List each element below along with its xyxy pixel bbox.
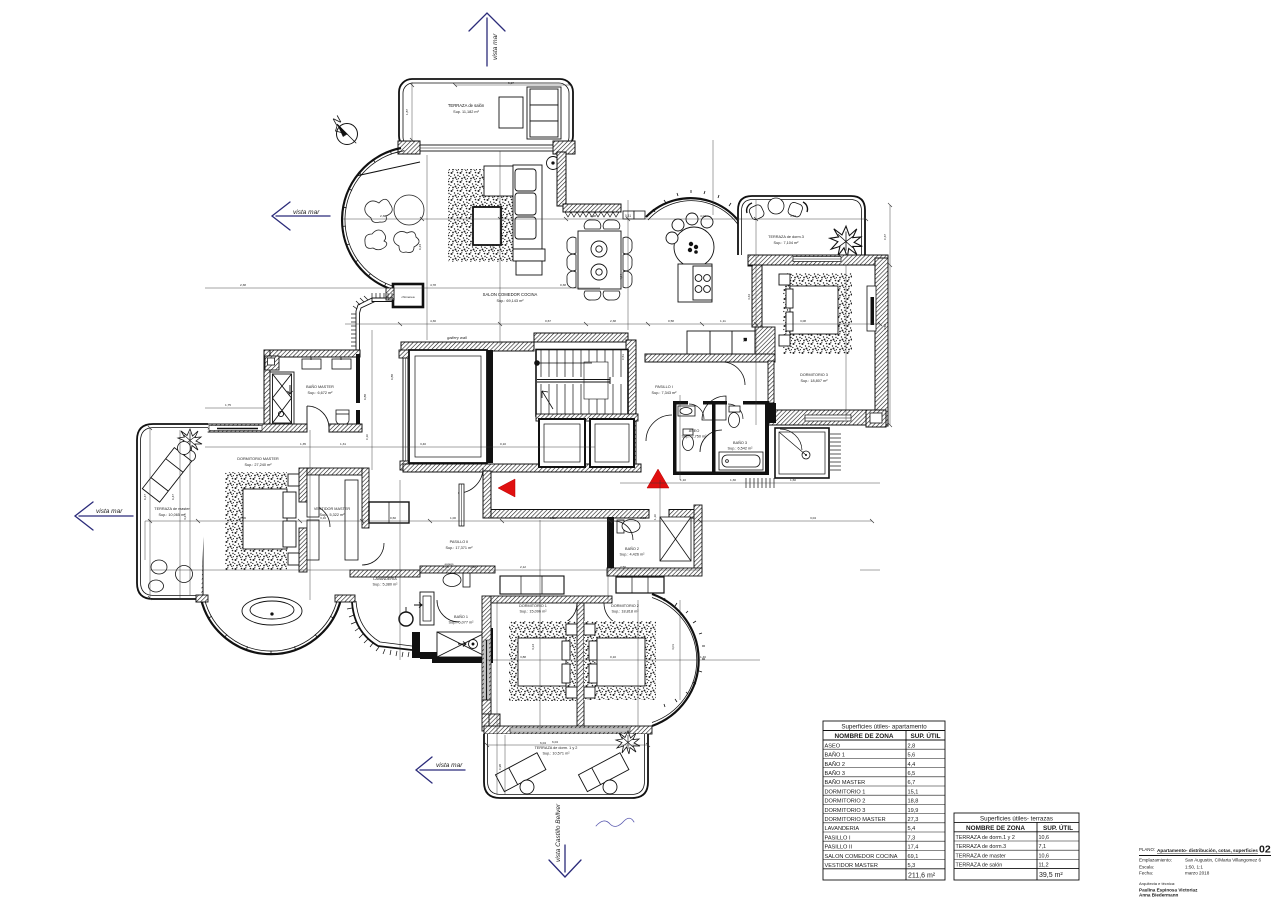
svg-text:1,01: 1,01 [443,565,449,569]
svg-text:6,7: 6,7 [908,780,916,786]
svg-text:vista mar: vista mar [96,508,123,515]
svg-text:2,38: 2,38 [240,283,246,287]
svg-text:SALON COMEDOR COCINA: SALON COMEDOR COCINA [825,854,898,860]
svg-text:BAÑO 1: BAÑO 1 [454,614,468,619]
svg-text:6,23: 6,23 [418,244,422,250]
svg-text:SUP. ÚTIL: SUP. ÚTIL [1043,823,1073,832]
svg-text:PASILLO II: PASILLO II [450,540,469,544]
svg-text:3,16: 3,16 [320,516,326,520]
svg-text:4,59: 4,59 [837,324,841,330]
svg-text:DORMITORIO 1: DORMITORIO 1 [825,789,866,795]
svg-text:3,40: 3,40 [420,442,426,446]
svg-text:19,9: 19,9 [908,808,919,814]
svg-text:3,13: 3,13 [531,644,535,650]
svg-text:Sup.: 4,426 m²: Sup.: 4,426 m² [620,553,646,557]
svg-text:3,68: 3,68 [470,565,476,569]
svg-text:PASILLO I: PASILLO I [655,385,673,389]
svg-text:27,3: 27,3 [908,817,919,823]
svg-text:4,08: 4,08 [491,244,495,250]
svg-text:San Augustin, C/Marta Villango: San Augustin, C/Marta Villangomez 6 [1185,858,1261,863]
svg-text:Sup.: 7,104 m²: Sup.: 7,104 m² [774,241,800,245]
svg-text:TERRAZA de dorm.1 y 2: TERRAZA de dorm.1 y 2 [956,835,1015,841]
svg-text:0,67: 0,67 [545,319,551,323]
svg-text:vista mar: vista mar [492,33,499,60]
svg-text:Sup.: 7,343 m²: Sup.: 7,343 m² [652,391,678,395]
svg-text:0,10: 0,10 [500,442,506,446]
svg-text:BAÑO 2: BAÑO 2 [825,761,846,768]
svg-text:4,34: 4,34 [747,294,751,300]
svg-text:15,1: 15,1 [908,789,919,795]
svg-text:4,02: 4,02 [700,214,706,218]
svg-text:marzo 2018: marzo 2018 [1185,871,1210,876]
svg-text:PASILLO II: PASILLO II [825,845,853,851]
svg-text:TERRAZA de dorm.3: TERRAZA de dorm.3 [956,844,1007,850]
svg-text:BAÑO 2: BAÑO 2 [625,546,639,551]
svg-text:NOMBRE DE ZONA: NOMBRE DE ZONA [966,825,1025,832]
svg-text:BAÑO 1: BAÑO 1 [825,752,846,759]
svg-text:Sup.: 15,096 m²: Sup.: 15,096 m² [519,610,547,614]
svg-text:Sup.: 5,380 m²: Sup.: 5,380 m² [373,583,399,587]
svg-text:6,47: 6,47 [171,494,175,500]
svg-text:Sup.: 10,571 m²: Sup.: 10,571 m² [542,752,570,756]
svg-text:vista mar: vista mar [436,762,463,769]
svg-text:2,8: 2,8 [908,743,916,749]
svg-text:DORMITORIO 1: DORMITORIO 1 [519,604,547,608]
svg-text:LAVANDERIA: LAVANDERIA [373,577,397,581]
svg-text:6,88: 6,88 [363,394,367,400]
svg-text:3,88: 3,88 [520,655,526,659]
svg-text:DORMITORIO 3: DORMITORIO 3 [825,808,866,814]
svg-text:6,47: 6,47 [143,494,147,500]
svg-text:BAÑO 3: BAÑO 3 [733,440,747,445]
svg-text:5,27: 5,27 [508,81,514,85]
svg-text:3,08: 3,08 [800,319,806,323]
svg-text:ASEO: ASEO [689,429,700,433]
svg-text:TERRAZA de dorm.3: TERRAZA de dorm.3 [768,235,804,239]
svg-text:0,10: 0,10 [365,434,369,440]
svg-text:10,6: 10,6 [1039,853,1050,859]
svg-text:TERRAZA de dorm. 1 y 2: TERRAZA de dorm. 1 y 2 [535,746,578,750]
svg-text:0,80: 0,80 [640,516,646,520]
svg-text:TERRAZA de salón: TERRAZA de salón [956,863,1003,869]
svg-text:1,20: 1,20 [550,516,556,520]
svg-text:PASILLO I: PASILLO I [825,835,851,841]
svg-text:2,38: 2,38 [610,319,616,323]
svg-text:Emplazamiento:: Emplazamiento: [1139,858,1172,863]
svg-text:DORMITORIO 2: DORMITORIO 2 [611,604,639,608]
svg-text:7,3: 7,3 [908,835,916,841]
svg-text:5,4: 5,4 [908,826,916,832]
svg-text:4,4: 4,4 [908,762,916,768]
svg-text:1,10: 1,10 [680,478,686,482]
svg-text:Sup. 11,182 m²: Sup. 11,182 m² [453,110,479,114]
svg-text:4,30: 4,30 [430,319,436,323]
svg-text:211,6 m²: 211,6 m² [908,873,936,880]
svg-text:1,31: 1,31 [340,442,346,446]
svg-text:VESTIDOR MASTER: VESTIDOR MASTER [825,863,878,869]
svg-text:PLANO:: PLANO: [1139,847,1155,852]
svg-text:VESTIDOR MASTER: VESTIDOR MASTER [314,507,351,511]
svg-text:vista Castillo Bellver: vista Castillo Bellver [555,803,562,862]
svg-text:DORMITORIO MASTER: DORMITORIO MASTER [825,817,886,823]
svg-text:BAÑO MASTER: BAÑO MASTER [825,779,866,786]
svg-text:0,10: 0,10 [610,655,616,659]
svg-text:ASEO: ASEO [825,743,841,749]
svg-text:gallery wall: gallery wall [447,335,467,340]
svg-text:11,2: 11,2 [1039,863,1049,869]
svg-text:2,12: 2,12 [520,565,526,569]
svg-text:2,50: 2,50 [620,565,626,569]
svg-text:SALON COMEDOR COCINA: SALON COMEDOR COCINA [483,292,538,297]
svg-text:SUP. ÚTIL: SUP. ÚTIL [910,731,940,740]
svg-text:LAVANDERIA: LAVANDERIA [825,826,860,832]
svg-text:6,88: 6,88 [390,374,394,380]
svg-text:6,04: 6,04 [540,741,546,745]
svg-text:0,60: 0,60 [390,516,396,520]
svg-text:39,5 m²: 39,5 m² [1039,872,1063,879]
svg-text:1,98: 1,98 [590,214,596,218]
svg-text:DORMITORIO 2: DORMITORIO 2 [825,799,866,805]
svg-text:Superficies útiles- terrazas: Superficies útiles- terrazas [980,815,1053,822]
svg-text:Fecha:: Fecha: [1139,871,1153,876]
svg-text:BAÑO 3: BAÑO 3 [825,770,846,777]
svg-text:0,38: 0,38 [560,283,566,287]
svg-text:1,75: 1,75 [225,403,231,407]
svg-text:0,98: 0,98 [498,764,502,770]
svg-text:1,00: 1,00 [450,516,456,520]
svg-text:4,78: 4,78 [430,283,436,287]
svg-text:Superficies útiles- apartament: Superficies útiles- apartamento [841,724,927,731]
svg-text:Sup.: 27,240 m²: Sup.: 27,240 m² [244,463,272,467]
svg-text:10,6: 10,6 [1039,835,1050,841]
svg-text:5,6: 5,6 [908,753,916,759]
svg-text:NOMBRE DE ZONA: NOMBRE DE ZONA [835,733,894,740]
svg-text:Sup.: 17,371 m²: Sup.: 17,371 m² [445,546,473,550]
svg-text:6,5: 6,5 [908,771,916,777]
svg-text:Sup.: 6,542 m²: Sup.: 6,542 m² [728,447,754,451]
svg-text:18,8: 18,8 [908,799,919,805]
svg-text:Sup.: 6,672 m²: Sup.: 6,672 m² [308,391,334,395]
svg-text:Escala:: Escala: [1139,865,1154,870]
svg-text:1,30: 1,30 [730,478,736,482]
svg-text:4,04: 4,04 [619,274,623,280]
svg-text:DORMITORIO MASTER: DORMITORIO MASTER [237,457,279,461]
svg-text:7,1: 7,1 [1039,844,1047,850]
svg-text:0,58: 0,58 [668,319,674,323]
svg-text:17,4: 17,4 [908,845,919,851]
svg-text:1,60: 1,60 [790,478,796,482]
svg-text:1:50, 1:1: 1:50, 1:1 [1185,865,1203,870]
svg-text:TERRAZA de salón: TERRAZA de salón [448,103,485,108]
svg-text:0,37: 0,37 [883,234,887,240]
svg-text:Sup.: 69,143 m²: Sup.: 69,143 m² [496,299,524,303]
svg-text:6,04: 6,04 [552,740,558,744]
svg-text:1,10: 1,10 [653,514,657,520]
svg-text:3,40: 3,40 [790,214,796,218]
svg-text:3,27: 3,27 [183,514,187,520]
svg-text:02: 02 [1259,844,1271,856]
svg-text:5,3: 5,3 [908,863,916,869]
svg-text:1,40: 1,40 [700,655,706,659]
svg-text:0,51: 0,51 [621,354,625,360]
svg-text:TERRAZA de master: TERRAZA de master [154,507,190,511]
svg-text:4,59: 4,59 [883,324,887,330]
svg-text:vista mar: vista mar [293,209,320,216]
svg-text:69,1: 69,1 [908,854,919,860]
svg-text:Apartamento- distribución, cot: Apartamento- distribución, cotas, superf… [1157,848,1258,853]
svg-text:1,06: 1,06 [240,516,246,520]
svg-text:1,87: 1,87 [405,109,409,115]
svg-text:Sup.: 18,818 m²: Sup.: 18,818 m² [611,610,639,614]
svg-text:3,04: 3,04 [810,516,816,520]
svg-text:DORMITORIO 3: DORMITORIO 3 [800,373,828,377]
svg-text:BAÑO MASTER: BAÑO MASTER [306,384,334,389]
svg-text:Sup.: 18,807 m²: Sup.: 18,807 m² [800,379,828,383]
svg-text:4,01: 4,01 [671,644,675,650]
svg-text:Arquitecta e técnica:: Arquitecta e técnica: [1139,881,1175,886]
svg-text:TERRAZA de master: TERRAZA de master [956,853,1007,859]
svg-text:2,38: 2,38 [380,214,386,218]
svg-text:Sup.: 2,750 m²: Sup.: 2,750 m² [682,435,708,439]
svg-text:Anna Biedermann: Anna Biedermann [1139,893,1179,898]
svg-text:1,35: 1,35 [300,442,306,446]
svg-text:chimenea: chimenea [401,295,414,299]
svg-text:1,11: 1,11 [720,319,726,323]
